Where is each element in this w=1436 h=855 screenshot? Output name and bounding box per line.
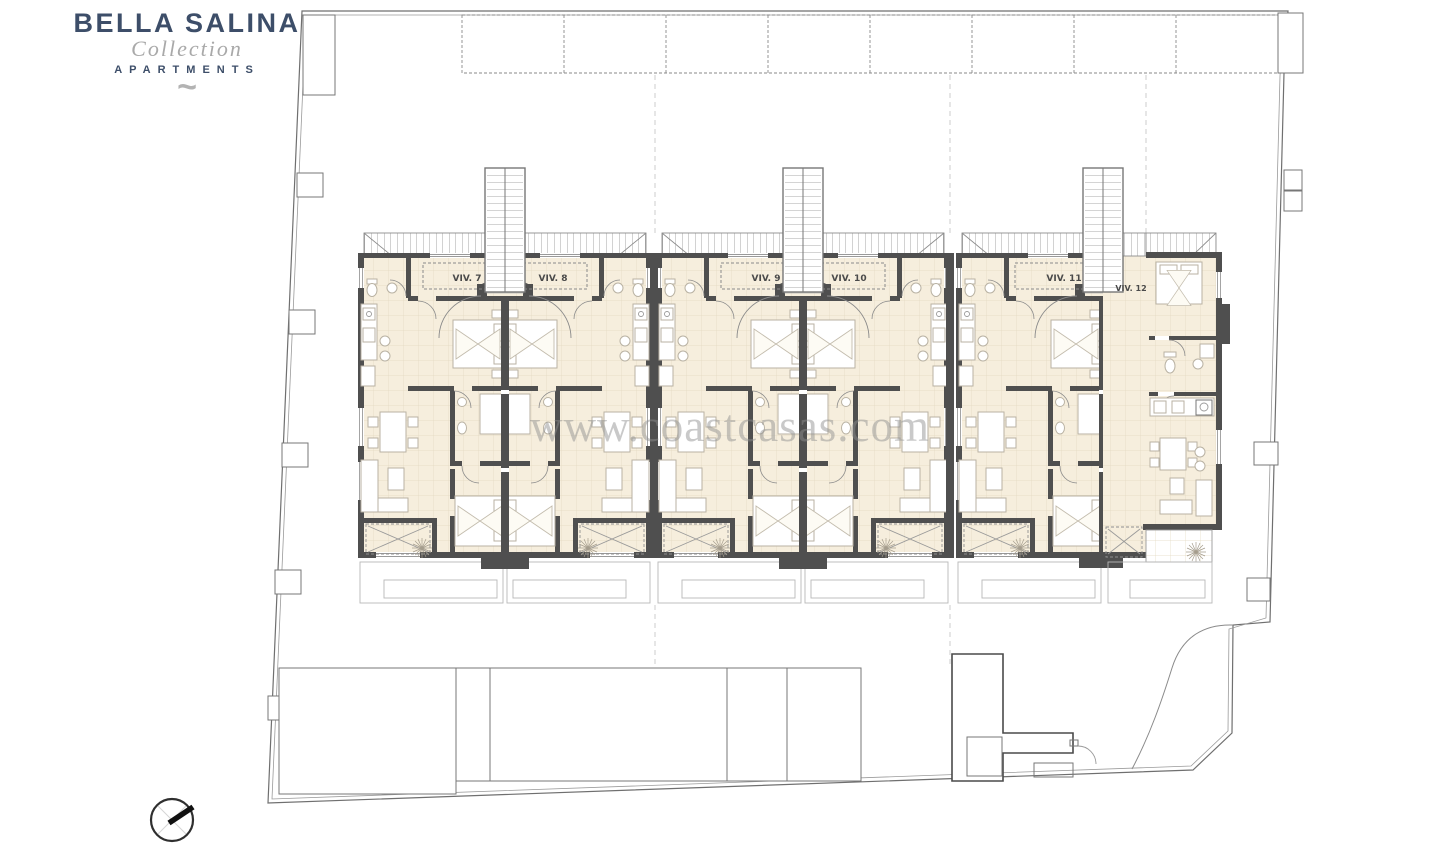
brand-logo: BELLA SALINA Collection APARTMENTS ~ [68, 8, 306, 97]
unit-label-viv-8: VIV. 8 [539, 274, 568, 284]
logo-title: BELLA SALINA [68, 8, 306, 39]
floorplan-page: BELLA SALINA Collection APARTMENTS ~ [0, 0, 1436, 855]
unit-label-viv-9: VIV. 9 [752, 274, 781, 284]
stair-shaft-3 [1083, 168, 1123, 292]
floor-plan-canvas: VIV. 7 VIV. 8 VIV. 9 VIV. 10 VIV. 11 VIV… [0, 0, 1436, 855]
unit-label-viv-12: VIV. 12 [1115, 284, 1146, 293]
bottom-structures [279, 668, 861, 794]
garden-path-curve [1132, 625, 1233, 769]
logo-subtitle: Collection [68, 36, 306, 62]
unit-label-viv-11: VIV. 11 [1046, 274, 1081, 284]
unit-label-viv-7: VIV. 7 [453, 274, 482, 284]
stair-shaft-2 [783, 168, 823, 292]
unit-label-viv-10: VIV. 10 [831, 274, 866, 284]
compass-north-arrow [151, 799, 193, 841]
pool-house-building [952, 654, 1096, 781]
parking-row [462, 15, 1278, 73]
stair-shaft-1 [485, 168, 525, 292]
logo-wave-icon: ~ [68, 78, 306, 97]
